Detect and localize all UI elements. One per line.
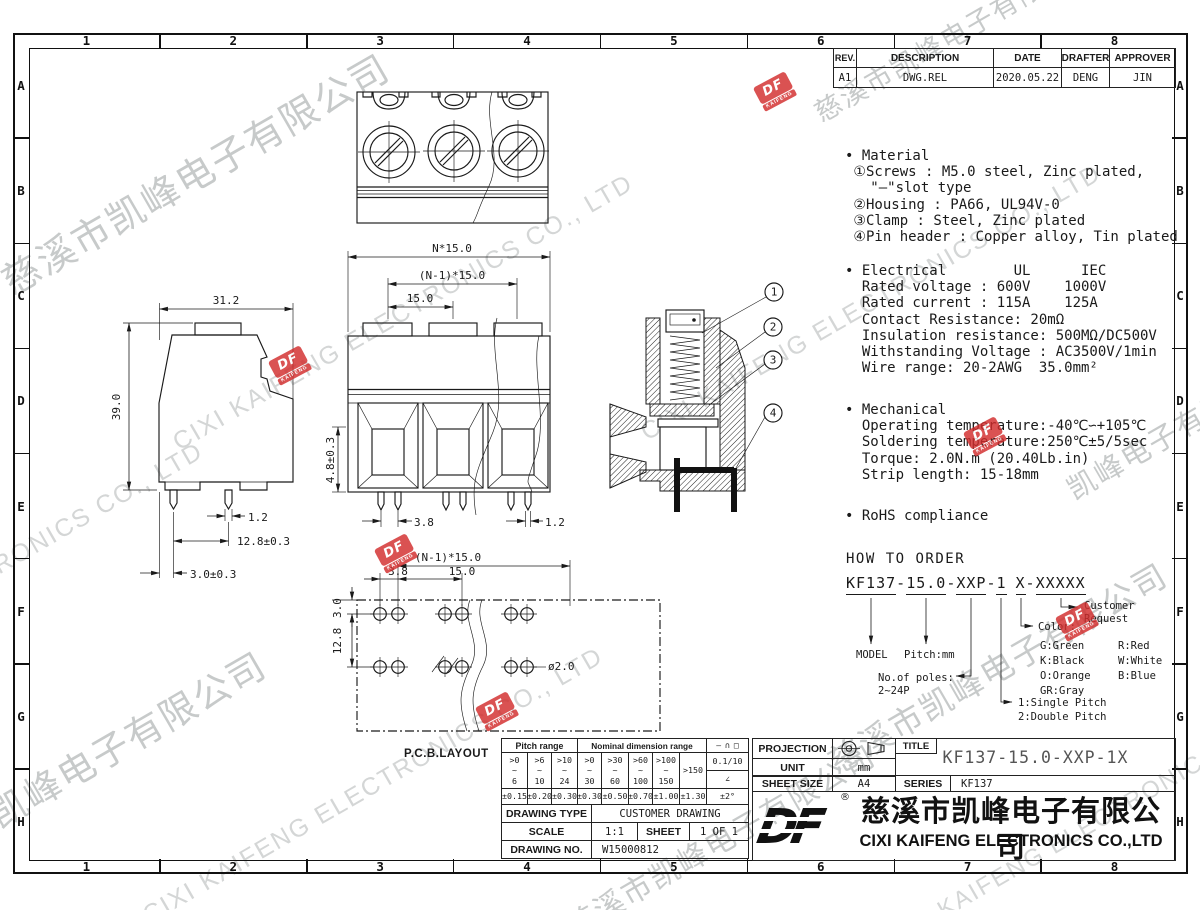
break-line [473, 600, 487, 731]
tolerance-cell: ±0.15 [501, 788, 528, 805]
order-code-sep: - [896, 574, 906, 592]
svg-text:N*15.0: N*15.0 [432, 242, 472, 255]
sheet-value: 1 OF 1 [689, 822, 749, 841]
title-label: TITLE [896, 739, 937, 754]
range-cell: >150 [679, 752, 707, 789]
tolerance-cell: ±0.50 [601, 788, 629, 805]
rev-value: A1 [833, 67, 857, 88]
order-code-model: KF137 [846, 574, 896, 595]
pin [225, 490, 232, 509]
svg-text:ø2.0: ø2.0 [548, 660, 575, 673]
company-name-cn: 慈溪市凯峰电子有限公司 [852, 793, 1170, 865]
svg-text:Request: Request [1084, 613, 1128, 625]
svg-text:12.8: 12.8 [331, 628, 344, 655]
pcb-dimensions: (N-1)*15.0 3.8 15.0 3.0 12.8 ø2.0 [331, 551, 575, 673]
tolerance-cell: ±0.70 [628, 788, 653, 805]
rev-header: DRAFTER [1061, 48, 1110, 68]
svg-text:MODEL: MODEL [856, 649, 888, 661]
pcb-layout: (N-1)*15.0 3.8 15.0 3.0 12.8 ø2.0 [331, 551, 660, 731]
pitch-range-header: Pitch range [501, 738, 578, 753]
sheet-size-value: A4 [832, 775, 896, 792]
rev-value: DWG.REL [856, 67, 994, 88]
tolerance-cell: ±0.20 [527, 788, 552, 805]
profile-symbol: ∩ [725, 741, 730, 750]
company-name-en: CIXI KAIFENG ELECTRONICS CO.,LTD [852, 832, 1170, 851]
registered-mark: ® [840, 792, 850, 803]
series-value: KF137 [950, 775, 1176, 792]
tolerance-cell: ±1.30 [679, 788, 707, 805]
svg-text:3.8: 3.8 [388, 565, 408, 578]
how-to-order-arrows: MODEL Pitch:mm No.of poles: 2~24P 1:Sing… [856, 598, 1162, 723]
order-code-color: X [1016, 574, 1026, 595]
sheet-size-label: SHEET SIZE [752, 775, 833, 792]
projection-symbol [832, 738, 896, 759]
tolerance-symbols: — ∩ □ [706, 738, 749, 753]
svg-text:W:White: W:White [1118, 655, 1162, 667]
tolerance-cell: ±0.30 [577, 788, 602, 805]
svg-text:1.2: 1.2 [248, 511, 268, 524]
flatness-symbol: □ [734, 741, 739, 750]
screw-head-section [666, 310, 704, 332]
svg-text:Pitch:mm: Pitch:mm [904, 649, 955, 661]
svg-text:B:Blue: B:Blue [1118, 670, 1156, 682]
order-code-pitchtype: 1 [996, 574, 1006, 595]
logo-stripe [760, 817, 834, 821]
rev-value: JIN [1109, 67, 1176, 88]
svg-text:1:Single Pitch: 1:Single Pitch [1018, 697, 1107, 709]
order-code-pitch: 15.0 [906, 574, 946, 595]
side-dimensions: 31.2 39.0 1.2 12.8±0.3 3.0±0.3 [110, 294, 293, 581]
drawing-sheet: 慈溪市凯峰电子有限公司 CIXI KAIFENG ELECTRONICS CO.… [0, 0, 1200, 910]
svg-text:4.8±0.3: 4.8±0.3 [324, 437, 337, 483]
logo-stripe [760, 829, 834, 833]
title-cell: TITLE KF137-15.0-XXP-1X [895, 738, 1176, 776]
svg-text:Color:: Color: [1038, 621, 1076, 633]
svg-text:K:Black: K:Black [1040, 655, 1085, 667]
order-code-custom: XXXXX [1036, 574, 1086, 595]
order-code-sep: - [946, 574, 956, 592]
rev-header: DATE [993, 48, 1062, 68]
svg-text:Customer: Customer [1084, 600, 1135, 612]
range-cell: >60 ~ 100 [628, 752, 653, 789]
range-cell: >10 ~ 24 [551, 752, 578, 789]
rev-value: 2020.05.22 [993, 67, 1062, 88]
svg-text:2:Double Pitch: 2:Double Pitch [1018, 711, 1107, 723]
screws-top [358, 120, 549, 183]
section-view: 1 2 3 4 [610, 283, 783, 512]
break-line [473, 92, 494, 223]
drawing-no-value: W15000812 [591, 840, 749, 859]
svg-text:2: 2 [770, 321, 777, 334]
projection-label: PROJECTION [752, 738, 833, 759]
svg-text:31.2: 31.2 [213, 294, 240, 307]
rev-value: DENG [1061, 67, 1110, 88]
order-code-poles: XXP [956, 574, 986, 595]
pcb-holes [370, 604, 537, 677]
svg-text:1: 1 [771, 286, 778, 299]
drawing-no-label: DRAWING NO. [501, 840, 592, 859]
sheet-label: SHEET [637, 822, 690, 841]
tolerance-cell: ±1.00 [652, 788, 680, 805]
straightness-symbol: — [716, 741, 721, 750]
svg-text:3.0±0.3: 3.0±0.3 [190, 568, 236, 581]
svg-text:R:Red: R:Red [1118, 640, 1150, 652]
svg-text:12.8±0.3: 12.8±0.3 [237, 535, 290, 548]
order-code-sep: - [986, 574, 996, 592]
svg-text:2~24P: 2~24P [878, 685, 910, 697]
svg-text:G:Green: G:Green [1040, 640, 1084, 652]
range-cell: >6 ~ 10 [527, 752, 552, 789]
rohs-spec: • RoHS compliance [845, 508, 988, 524]
wire-funnels [358, 403, 548, 488]
side-view: 31.2 39.0 1.2 12.8±0.3 3.0±0.3 [110, 294, 293, 581]
svg-text:(N-1)*15.0: (N-1)*15.0 [419, 269, 485, 282]
order-code: KF137-15.0-XXP-1X-XXXXX [846, 574, 1086, 592]
screw-pockets [373, 92, 534, 109]
series-label: SERIES [895, 775, 951, 792]
svg-text:15.0: 15.0 [407, 292, 434, 305]
front-view: N*15.0 (N-1)*15.0 15.0 4.8±0.3 3.8 1.2 [324, 242, 565, 529]
angle-symbol: ∠ [706, 770, 749, 789]
svg-text:3: 3 [770, 354, 777, 367]
svg-text:4: 4 [770, 407, 777, 420]
svg-text:O:Orange: O:Orange [1040, 670, 1091, 682]
mechanical-spec: • Mechanical Operating temperature:-40℃∽… [845, 402, 1147, 483]
svg-text:1.2: 1.2 [545, 516, 565, 529]
material-spec: • Material ①Screws : M5.0 steel, Zinc pl… [845, 148, 1178, 245]
nominal-range-header: Nominal dimension range [577, 738, 707, 753]
range-cell: >0 ~ 30 [577, 752, 602, 789]
electrical-spec: • Electrical UL IEC Rated voltage : 600V… [845, 263, 1157, 376]
pin [170, 490, 177, 509]
rev-header: REV. [833, 48, 857, 68]
kaifeng-logo: DF [753, 799, 824, 855]
pins-front [378, 492, 531, 510]
range-cell: >0 ~ 6 [501, 752, 528, 789]
svg-text:39.0: 39.0 [110, 394, 123, 421]
screw-thread [670, 336, 700, 400]
range-cell: >30 ~ 60 [601, 752, 629, 789]
scale-label: SCALE [501, 822, 592, 841]
svg-text:(N-1)*15.0: (N-1)*15.0 [415, 551, 481, 564]
drawing-type-label: DRAWING TYPE [501, 804, 592, 823]
angle-tolerance: ±2° [706, 788, 749, 805]
first-angle-projection-icon [834, 739, 894, 758]
drawing-type-value: CUSTOMER DRAWING [591, 804, 749, 823]
flatness-tolerance: 0.1/10 [706, 752, 749, 771]
order-code-sep: - [1026, 574, 1036, 592]
scale-value: 1:1 [591, 822, 638, 841]
top-view [357, 92, 549, 223]
svg-text:15.0: 15.0 [449, 565, 476, 578]
pcb-layout-label: P.C.B.LAYOUT [404, 748, 489, 760]
svg-text:3.8: 3.8 [414, 516, 434, 529]
rev-header: APPROVER [1109, 48, 1176, 68]
drawing-title: KF137-15.0-XXP-1X [943, 748, 1129, 767]
svg-text:No.of poles:: No.of poles: [878, 672, 954, 684]
how-to-order-title: HOW TO ORDER [846, 551, 965, 567]
rev-header: DESCRIPTION [856, 48, 994, 68]
tolerance-cell: ±0.30 [551, 788, 578, 805]
svg-text:3.0: 3.0 [331, 598, 344, 618]
range-cell: >100 ~ 150 [652, 752, 680, 789]
svg-text:GR:Gray: GR:Gray [1040, 685, 1084, 697]
